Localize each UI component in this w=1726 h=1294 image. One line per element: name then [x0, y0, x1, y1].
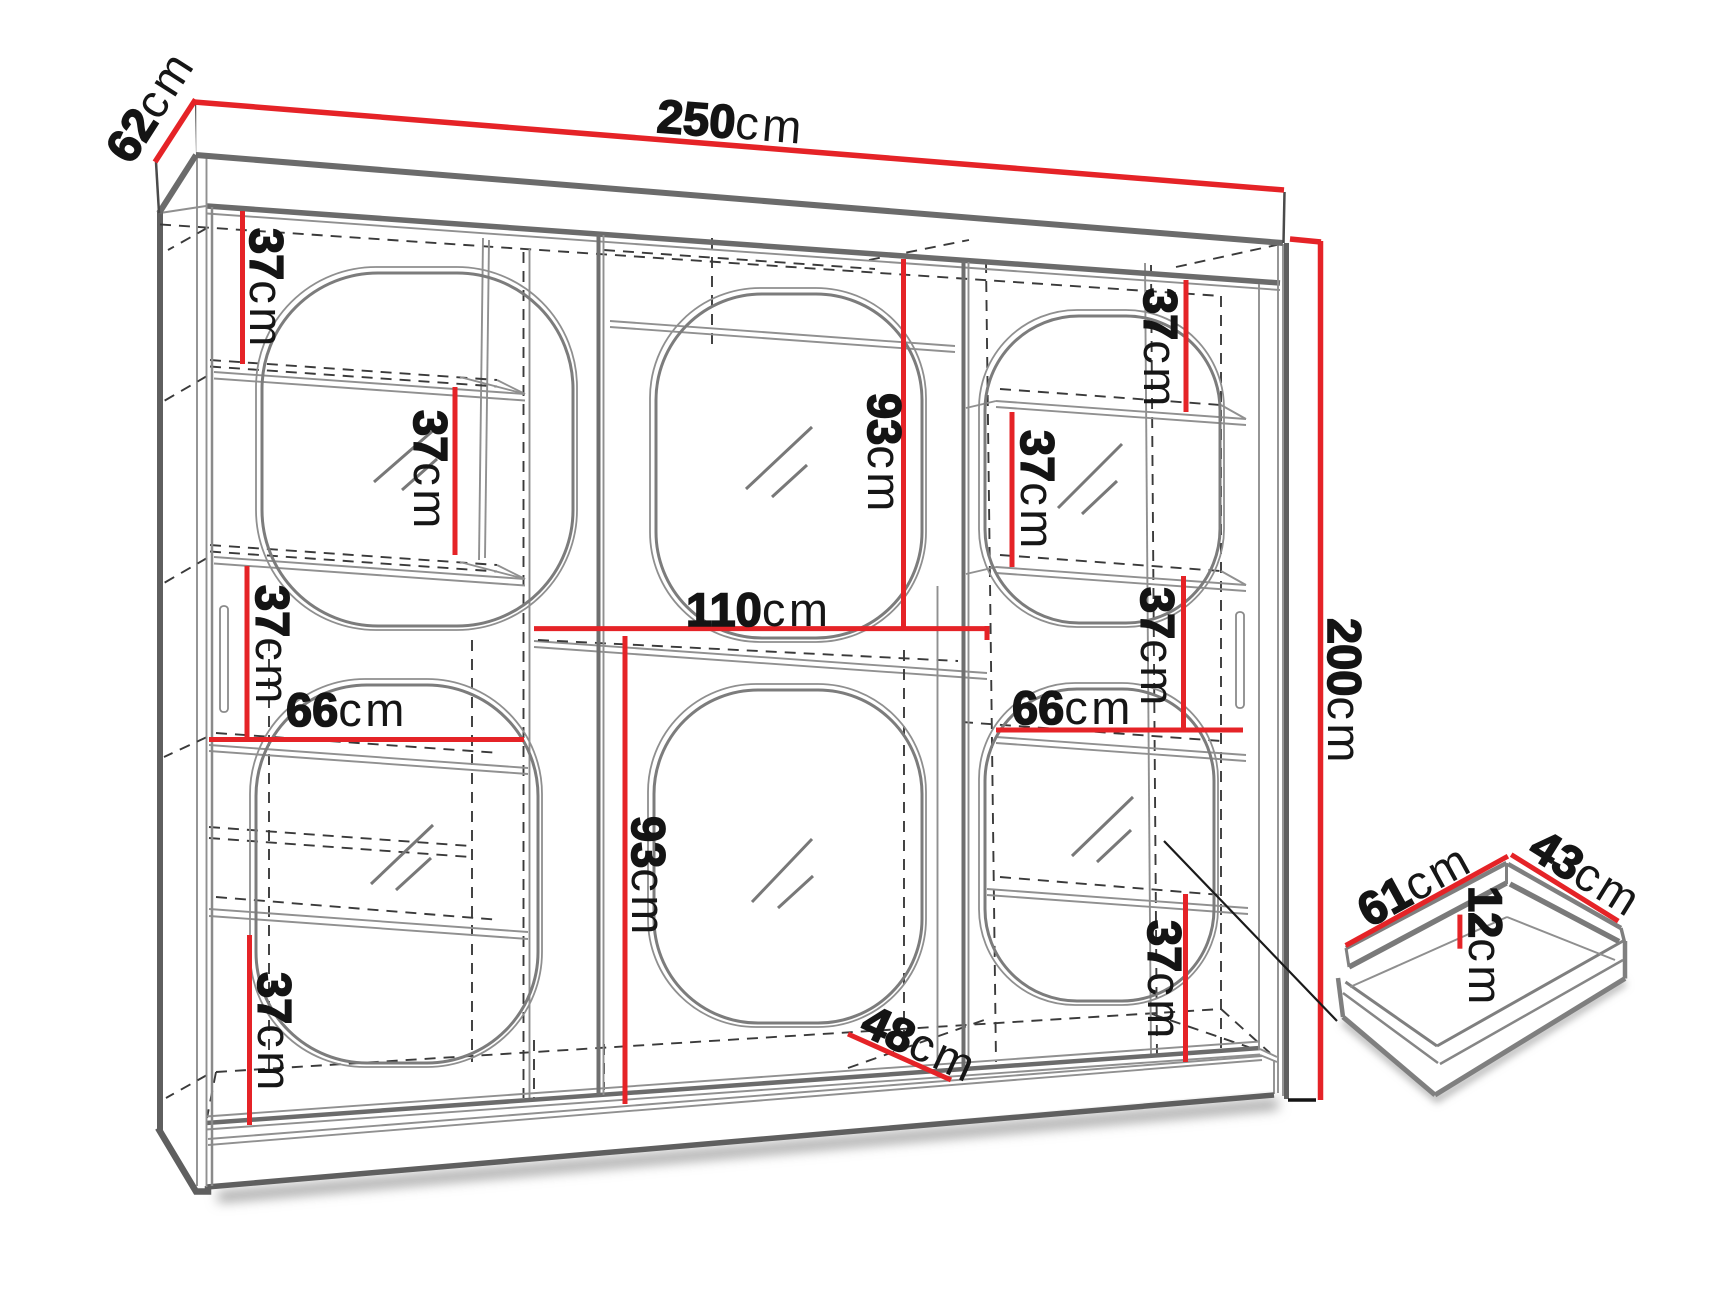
svg-text:37cm: 37cm: [1138, 920, 1191, 1042]
svg-text:37cm: 37cm: [1011, 430, 1064, 552]
svg-text:110cm: 110cm: [686, 583, 831, 636]
svg-text:12cm: 12cm: [1459, 886, 1512, 1008]
svg-text:66cm: 66cm: [286, 683, 408, 736]
svg-text:93cm: 93cm: [622, 816, 675, 938]
svg-text:66cm: 66cm: [1012, 681, 1134, 734]
svg-text:200cm: 200cm: [1318, 618, 1371, 766]
svg-text:37cm: 37cm: [248, 972, 301, 1094]
svg-text:37cm: 37cm: [240, 228, 293, 350]
svg-text:37cm: 37cm: [404, 410, 457, 532]
svg-text:37cm: 37cm: [1131, 587, 1184, 709]
svg-text:93cm: 93cm: [858, 393, 911, 515]
svg-text:37cm: 37cm: [1134, 288, 1187, 410]
